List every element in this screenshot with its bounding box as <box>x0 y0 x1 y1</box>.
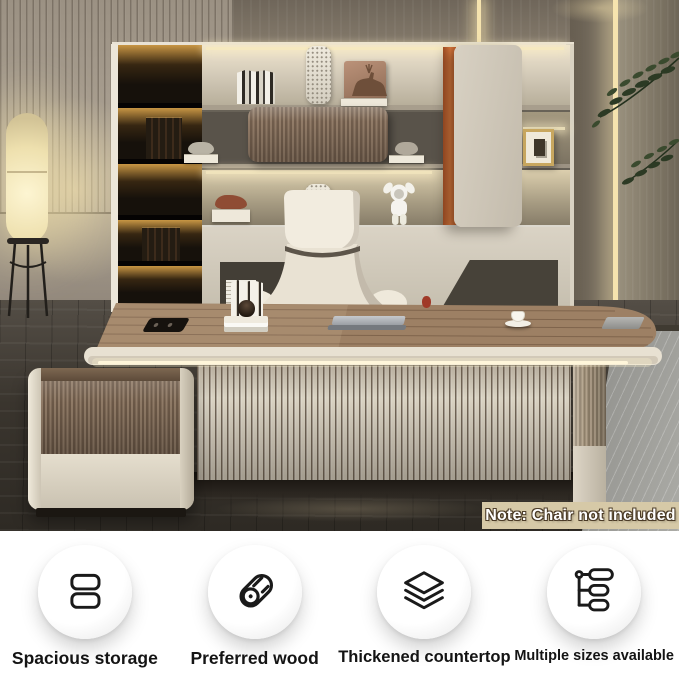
feature-badge <box>377 545 471 639</box>
plant-leaves <box>597 65 677 186</box>
feature-label: Thickened countertop <box>338 648 510 667</box>
feature-badge <box>208 545 302 639</box>
product-listing-image: Note: Chair not included Spacious storag… <box>0 0 679 679</box>
feature-thickened-countertop: Thickened countertop <box>340 531 510 679</box>
feature-label: Spacious storage <box>12 648 158 669</box>
wood-log-icon <box>227 564 283 620</box>
size-options-icon <box>566 564 622 620</box>
storage-drawers-icon <box>57 564 113 620</box>
plant-overlay <box>0 0 679 531</box>
feature-badge <box>38 545 132 639</box>
feature-spacious-storage: Spacious storage <box>0 531 170 679</box>
feature-badge <box>547 545 641 639</box>
feature-label: Preferred wood <box>190 648 318 669</box>
stacked-layers-icon <box>396 564 452 620</box>
feature-preferred-wood: Preferred wood <box>170 531 340 679</box>
product-photo: Note: Chair not included <box>0 0 679 531</box>
note-badge: Note: Chair not included <box>482 502 679 529</box>
feature-label: Multiple sizes available <box>514 648 674 664</box>
feature-strip: Spacious storage Preferred wood <box>0 531 679 679</box>
feature-multiple-sizes: Multiple sizes available <box>509 531 679 679</box>
